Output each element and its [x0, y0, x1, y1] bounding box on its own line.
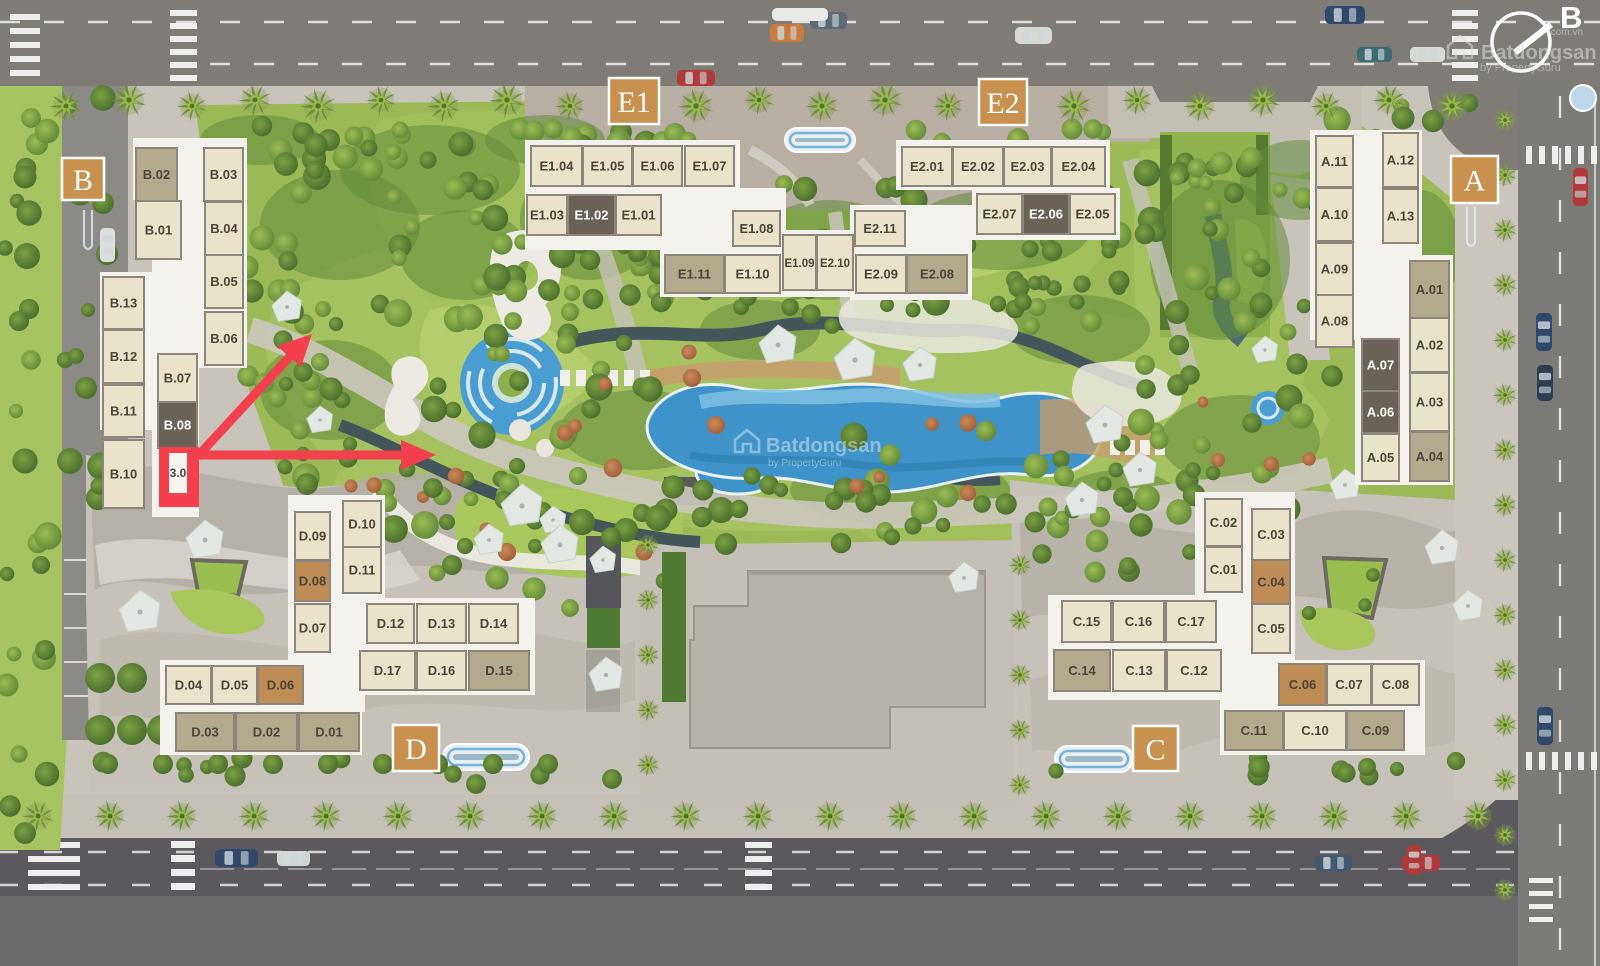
- svg-text:E2.09: E2.09: [864, 267, 898, 282]
- svg-text:E2.08: E2.08: [920, 267, 954, 282]
- svg-text:C: C: [1145, 733, 1165, 766]
- svg-text:C.17: C.17: [1177, 614, 1204, 629]
- svg-text:E1.04: E1.04: [540, 159, 575, 174]
- svg-text:B.08: B.08: [164, 418, 191, 433]
- svg-text:.com.vn: .com.vn: [1548, 27, 1583, 38]
- svg-text:D.04: D.04: [175, 678, 203, 693]
- svg-text:E2.06: E2.06: [1029, 207, 1063, 222]
- svg-text:by PropertyGuru: by PropertyGuru: [768, 458, 841, 469]
- svg-text:C.13: C.13: [1125, 663, 1152, 678]
- svg-text:B.12: B.12: [110, 349, 137, 364]
- svg-text:E2.02: E2.02: [961, 159, 995, 174]
- svg-text:C.11: C.11: [1241, 723, 1268, 738]
- svg-text:E1.10: E1.10: [736, 267, 770, 282]
- svg-text:A: A: [1464, 164, 1486, 197]
- svg-text:C.12: C.12: [1180, 663, 1207, 678]
- svg-text:A.13: A.13: [1387, 209, 1414, 224]
- svg-text:3.0: 3.0: [170, 466, 187, 480]
- svg-text:D.17: D.17: [374, 663, 401, 678]
- svg-text:B.02: B.02: [143, 167, 170, 182]
- svg-text:A.03: A.03: [1416, 395, 1443, 410]
- svg-text:E2.05: E2.05: [1076, 207, 1110, 222]
- svg-text:A.10: A.10: [1321, 207, 1348, 222]
- svg-text:E1.07: E1.07: [693, 159, 727, 174]
- svg-text:A.09: A.09: [1321, 262, 1348, 277]
- svg-text:D: D: [405, 733, 427, 766]
- svg-text:E1.05: E1.05: [591, 159, 625, 174]
- svg-text:C.03: C.03: [1257, 527, 1284, 542]
- svg-text:D.12: D.12: [377, 616, 404, 631]
- svg-text:C.08: C.08: [1382, 677, 1409, 692]
- svg-text:Batdongsan: Batdongsan: [766, 435, 882, 457]
- svg-text:D.06: D.06: [267, 678, 294, 693]
- svg-text:D.01: D.01: [315, 725, 342, 740]
- svg-text:A.11: A.11: [1321, 154, 1348, 169]
- svg-text:B.05: B.05: [210, 274, 237, 289]
- svg-text:C.01: C.01: [1210, 562, 1237, 577]
- svg-text:C.10: C.10: [1301, 723, 1328, 738]
- svg-text:E2.10: E2.10: [820, 258, 850, 270]
- svg-text:E1.08: E1.08: [740, 221, 774, 236]
- svg-text:C.15: C.15: [1073, 614, 1100, 629]
- svg-text:E1.02: E1.02: [575, 208, 609, 223]
- svg-text:C.14: C.14: [1068, 663, 1096, 678]
- svg-text:D.13: D.13: [428, 616, 455, 631]
- svg-text:D.03: D.03: [191, 725, 218, 740]
- svg-text:A.07: A.07: [1367, 358, 1394, 373]
- svg-text:D.15: D.15: [485, 663, 512, 678]
- svg-text:E2.11: E2.11: [863, 221, 896, 236]
- svg-text:A.01: A.01: [1416, 282, 1443, 297]
- svg-text:C.04: C.04: [1257, 575, 1285, 590]
- svg-text:A.05: A.05: [1367, 450, 1394, 465]
- svg-text:B: B: [73, 164, 93, 197]
- svg-text:D.05: D.05: [221, 678, 248, 693]
- svg-text:C.06: C.06: [1289, 677, 1316, 692]
- svg-text:E2.04: E2.04: [1062, 159, 1097, 174]
- svg-text:E2.03: E2.03: [1011, 159, 1045, 174]
- svg-text:E1.09: E1.09: [784, 258, 814, 270]
- svg-text:D.11: D.11: [349, 563, 376, 578]
- svg-text:A.12: A.12: [1387, 153, 1414, 168]
- svg-text:E2.01: E2.01: [910, 159, 944, 174]
- svg-text:E1.11: E1.11: [678, 267, 711, 282]
- svg-text:D.09: D.09: [299, 529, 326, 544]
- svg-text:E2: E2: [986, 87, 1019, 120]
- svg-text:A.02: A.02: [1416, 338, 1443, 353]
- svg-text:C.07: C.07: [1335, 677, 1362, 692]
- svg-text:D.10: D.10: [348, 517, 375, 532]
- svg-text:B.04: B.04: [210, 221, 238, 236]
- svg-text:E1: E1: [617, 86, 650, 119]
- svg-text:C.05: C.05: [1257, 621, 1284, 636]
- svg-text:D.02: D.02: [253, 725, 280, 740]
- svg-text:D.08: D.08: [299, 574, 326, 589]
- svg-text:A.08: A.08: [1321, 314, 1348, 329]
- svg-text:C.16: C.16: [1125, 614, 1152, 629]
- svg-text:C.09: C.09: [1362, 723, 1389, 738]
- svg-text:by PropertyGuru: by PropertyGuru: [1480, 62, 1561, 74]
- svg-text:E1.03: E1.03: [530, 208, 564, 223]
- svg-text:C.02: C.02: [1210, 515, 1237, 530]
- svg-text:B.06: B.06: [210, 331, 237, 346]
- svg-text:E2.07: E2.07: [983, 207, 1017, 222]
- svg-text:B.01: B.01: [145, 223, 172, 238]
- svg-text:B.03: B.03: [210, 167, 237, 182]
- svg-text:B.07: B.07: [164, 371, 191, 386]
- svg-text:D.14: D.14: [480, 616, 508, 631]
- svg-text:B.13: B.13: [110, 296, 137, 311]
- svg-text:A.06: A.06: [1367, 405, 1394, 420]
- svg-text:D.16: D.16: [428, 663, 455, 678]
- svg-text:Batdongsan: Batdongsan: [1481, 42, 1597, 64]
- svg-text:E1.06: E1.06: [641, 159, 675, 174]
- svg-text:A.04: A.04: [1416, 449, 1444, 464]
- svg-text:B.10: B.10: [110, 467, 137, 482]
- svg-text:D.07: D.07: [299, 621, 326, 636]
- svg-text:E1.01: E1.01: [622, 208, 656, 223]
- svg-text:B.11: B.11: [110, 404, 137, 419]
